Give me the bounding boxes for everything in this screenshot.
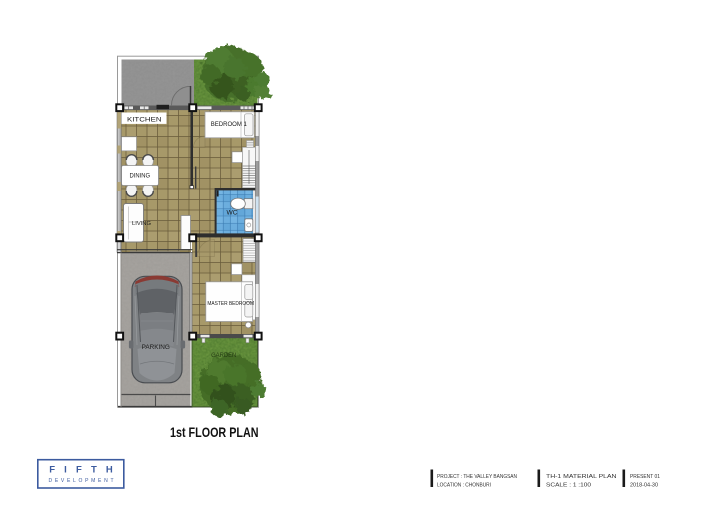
svg-text:WC: WC	[227, 209, 239, 216]
svg-text:PROJECT : THE VALLEY BANGSAN: PROJECT : THE VALLEY BANGSAN	[437, 474, 517, 480]
svg-text:KITCHEN: KITCHEN	[127, 117, 162, 124]
svg-text:1st FLOOR PLAN: 1st FLOOR PLAN	[170, 425, 259, 440]
svg-text:TH-1 MATERIAL PLAN: TH-1 MATERIAL PLAN	[546, 474, 617, 480]
svg-text:LOCATION : CHONBURI: LOCATION : CHONBURI	[437, 483, 491, 489]
svg-text:2018-04-30: 2018-04-30	[630, 483, 658, 489]
svg-text:GARDEN: GARDEN	[211, 352, 236, 359]
svg-text:BEDROOM 1: BEDROOM 1	[211, 121, 248, 128]
svg-text:SCALE : 1 :100: SCALE : 1 :100	[546, 483, 591, 489]
svg-text:PRESENT 01: PRESENT 01	[630, 474, 660, 480]
svg-text:PARKING: PARKING	[142, 344, 170, 351]
svg-text:MASTER BEDROOM: MASTER BEDROOM	[207, 301, 254, 307]
svg-text:LIVING: LIVING	[132, 221, 151, 227]
svg-text:DINING: DINING	[130, 173, 151, 180]
